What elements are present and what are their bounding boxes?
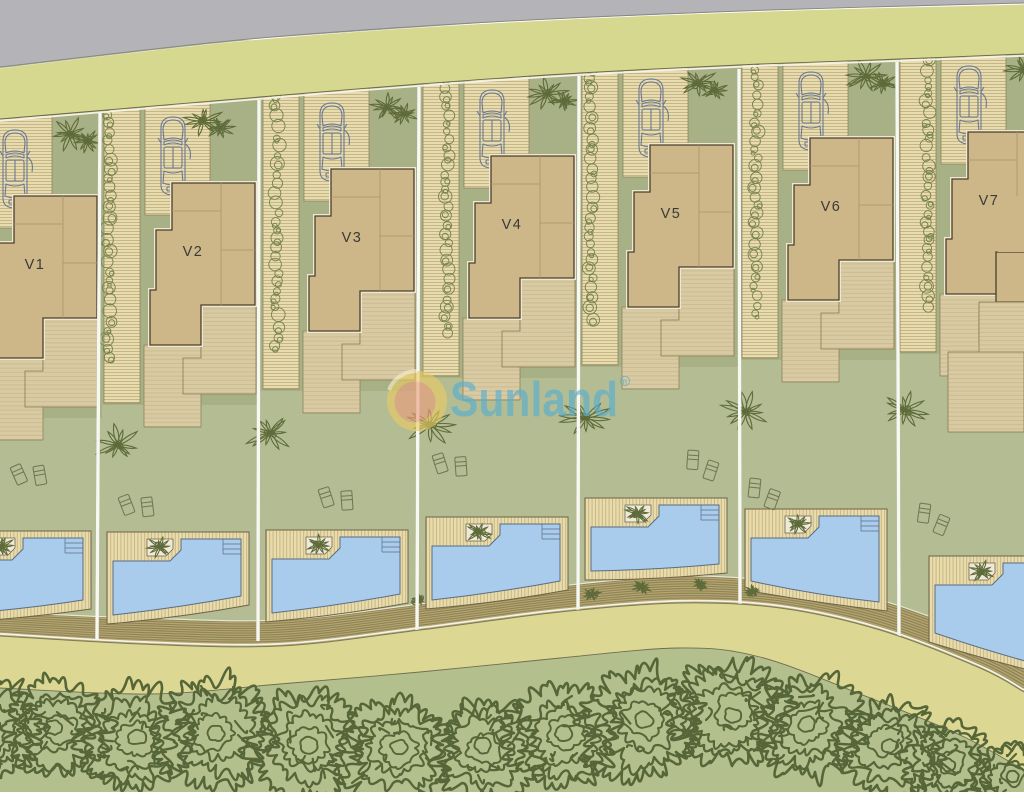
svg-text:V1: V1 — [25, 257, 46, 273]
svg-text:V7: V7 — [979, 193, 1000, 209]
svg-text:V3: V3 — [342, 230, 363, 246]
svg-text:V6: V6 — [821, 199, 842, 215]
svg-text:V5: V5 — [661, 206, 682, 222]
svg-text:V4: V4 — [502, 217, 523, 233]
svg-text:Sunland: Sunland — [450, 373, 618, 427]
svg-text:R: R — [623, 379, 628, 386]
svg-text:V2: V2 — [183, 244, 204, 260]
